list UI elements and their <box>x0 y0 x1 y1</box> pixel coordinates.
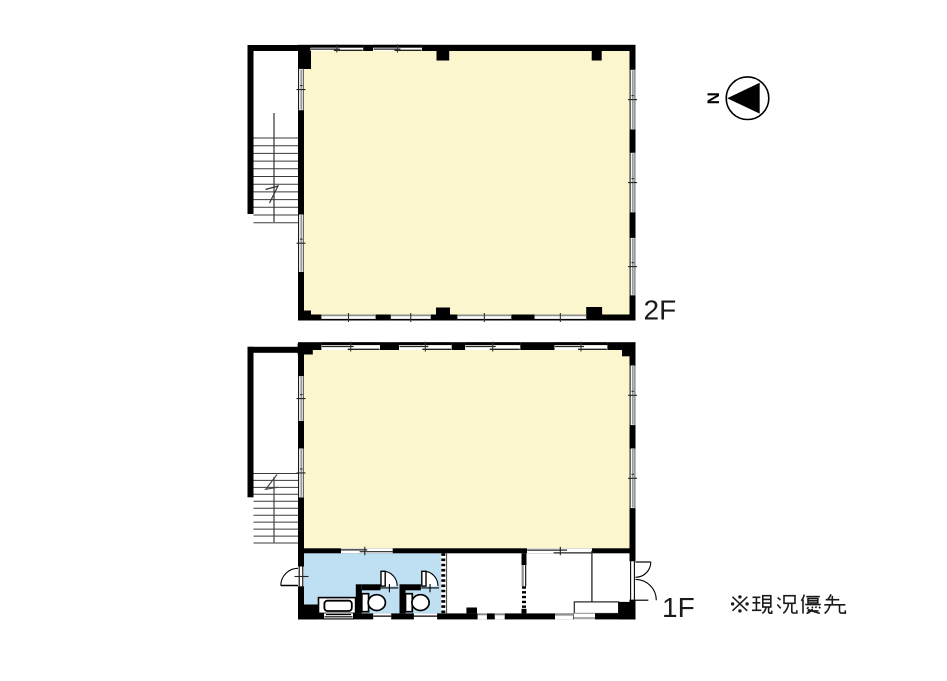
svg-text:1F: 1F <box>662 592 695 623</box>
svg-text:2F: 2F <box>644 294 677 325</box>
svg-text:N: N <box>704 92 723 104</box>
